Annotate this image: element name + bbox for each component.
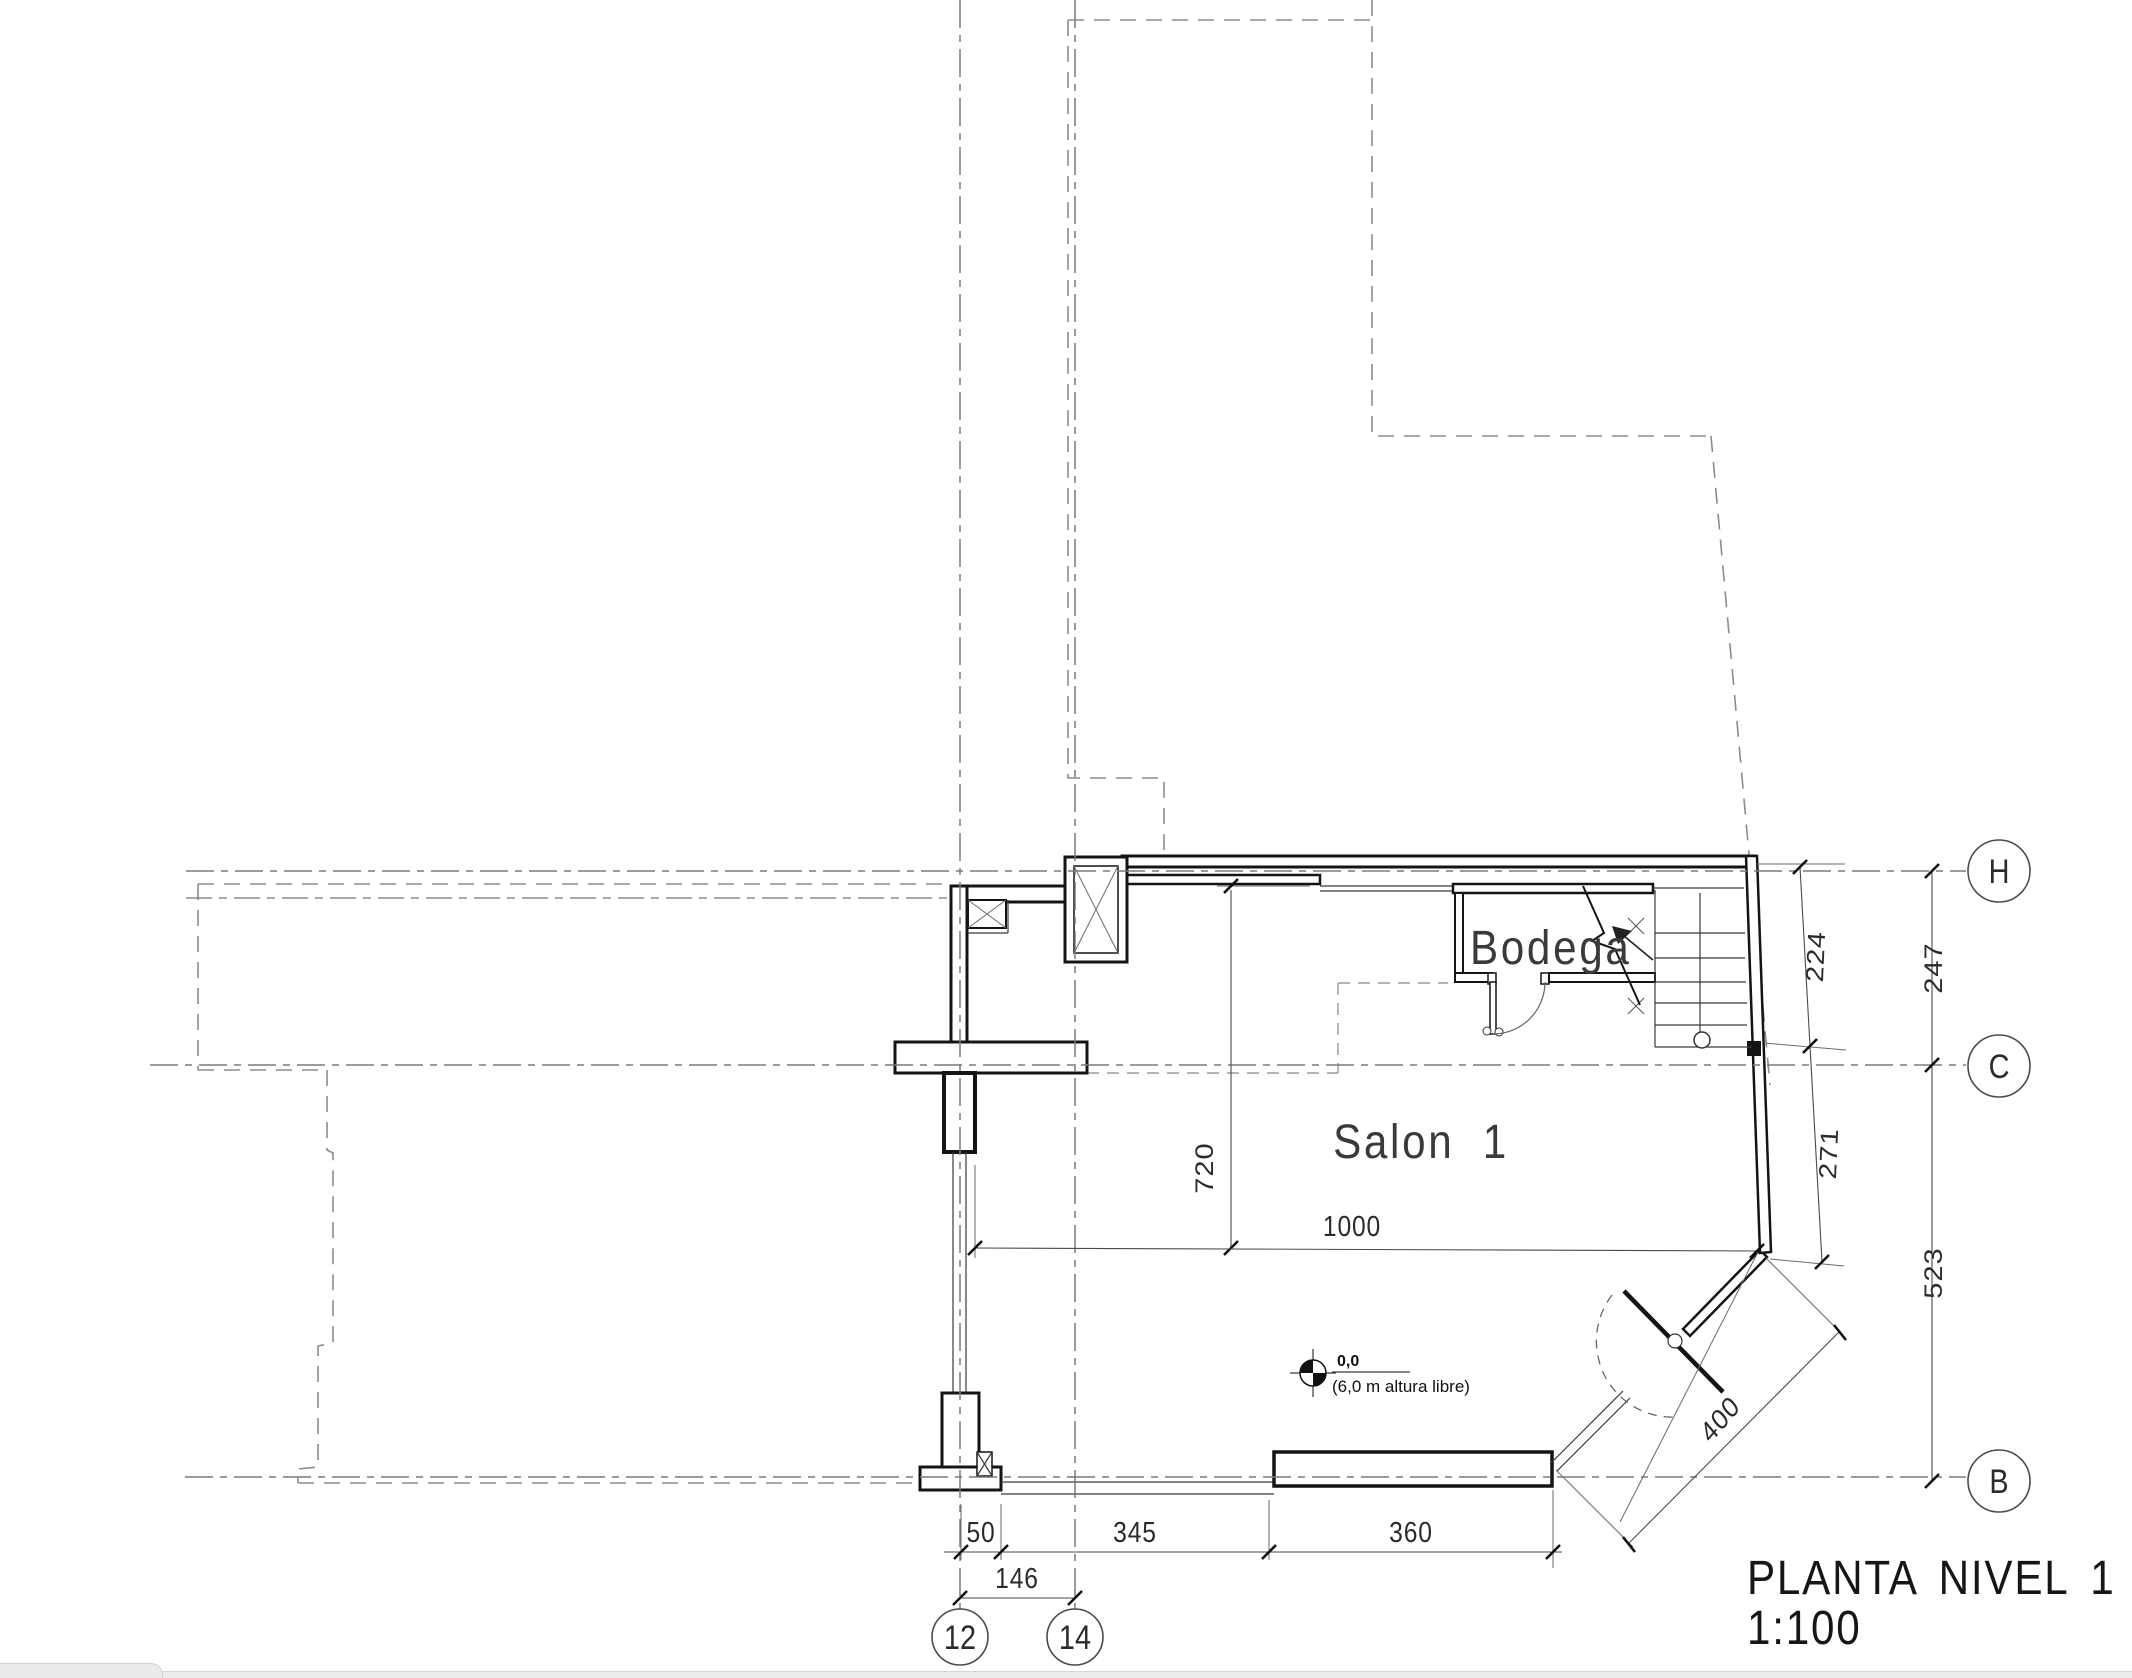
dim-400: 400 (1695, 1390, 1745, 1449)
dim-720: 720 (1191, 1142, 1218, 1193)
room-label-salon: Salon 1 (1333, 1114, 1509, 1168)
dim-523: 523 (1920, 1247, 1947, 1298)
room-labels: Bodega Salon 1 (1333, 920, 1631, 1168)
plan-title: PLANTA NIVEL 1 (1747, 1550, 2116, 1604)
stair-handrail-post (1694, 1032, 1710, 1048)
floor-plan-drawing: 50 345 360 146 720 1000 224 271 247 523 (0, 0, 2132, 1678)
dim-50: 50 (966, 1516, 995, 1548)
shaft-boxes (968, 857, 1127, 962)
bottom-left-chrome-tab (0, 1663, 163, 1678)
datum-marker: 0,0 (6,0 m altura libre) (1290, 1349, 1470, 1397)
dimensions: 50 345 360 146 720 1000 224 271 247 523 (944, 860, 1947, 1605)
room-label-bodega: Bodega (1470, 920, 1631, 974)
walls (895, 856, 1771, 1494)
datum-note-label: (6,0 m altura libre) (1332, 1377, 1470, 1396)
cad-viewer-screen: 50 345 360 146 720 1000 224 271 247 523 (0, 0, 2132, 1678)
grid-bubble-C-label: C (1989, 1047, 2010, 1086)
bodega-door (1483, 982, 1545, 1036)
grid-bubble-12-label: 12 (944, 1618, 976, 1657)
dim-271: 271 (1814, 1127, 1844, 1180)
dim-1000: 1000 (1323, 1210, 1381, 1242)
grid-lines (150, 0, 1966, 1609)
dim-146: 146 (995, 1562, 1039, 1594)
datum-elevation-label: 0,0 (1337, 1353, 1359, 1370)
dim-345: 345 (1113, 1516, 1157, 1548)
projection-lines (1087, 983, 1448, 1073)
grid-bubble-14-label: 14 (1059, 1618, 1091, 1657)
plan-scale: 1:100 (1747, 1600, 1861, 1654)
title-block: PLANTA NIVEL 1 1:100 (1747, 1550, 2116, 1654)
dim-360: 360 (1389, 1516, 1433, 1548)
dim-247: 247 (1920, 942, 1947, 993)
grid-bubble-B-label: B (1989, 1462, 2008, 1501)
bottom-window-edge (0, 1671, 2132, 1678)
dim-224: 224 (1801, 930, 1831, 983)
site-boundary-lines (186, 0, 1770, 1483)
grid-bubble-H-label: H (1989, 852, 2010, 891)
